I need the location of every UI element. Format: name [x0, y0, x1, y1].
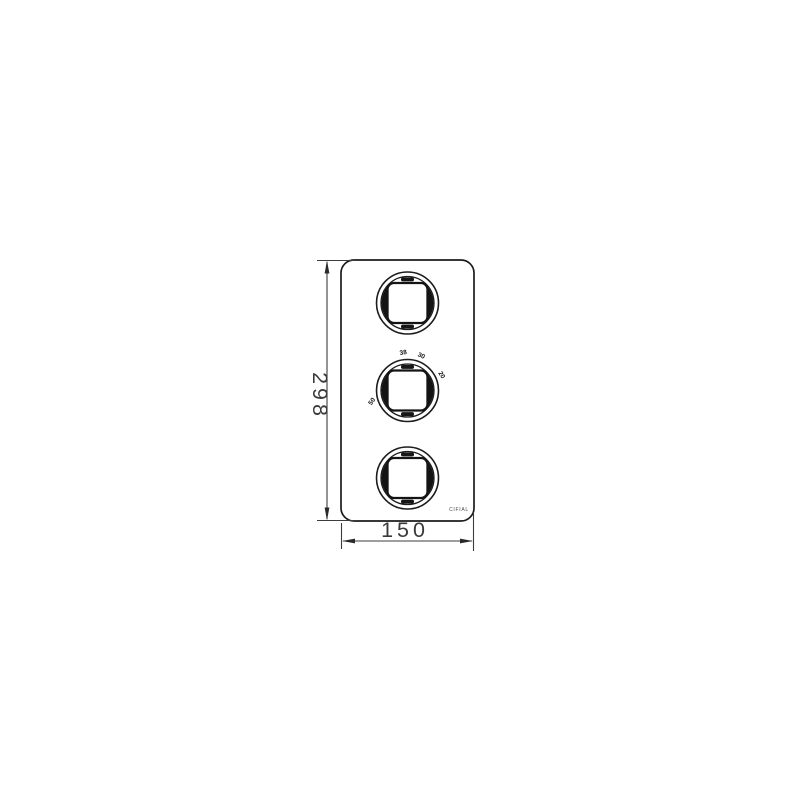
width-dimension-arrow-left: [342, 539, 355, 544]
valve-trim-drawing: 298 150 38 30 20 50 CIFIAL: [0, 0, 800, 800]
technical-drawing-canvas: 298 150 38 30 20 50 CIFIAL: [0, 0, 800, 800]
width-dimension-label: 150: [381, 518, 429, 542]
knob-middle-thermostat: [377, 360, 439, 422]
width-dimension-arrow-right: [460, 539, 473, 544]
height-dimension-arrow-up: [325, 261, 330, 274]
knob-bottom: [377, 447, 439, 509]
temperature-mark-38: 38: [399, 349, 408, 357]
brand-logo-text: CIFIAL: [449, 507, 469, 513]
height-dimension-arrow-down: [325, 508, 330, 521]
height-dimension-label: 298: [308, 372, 332, 420]
knob-top: [377, 272, 439, 334]
